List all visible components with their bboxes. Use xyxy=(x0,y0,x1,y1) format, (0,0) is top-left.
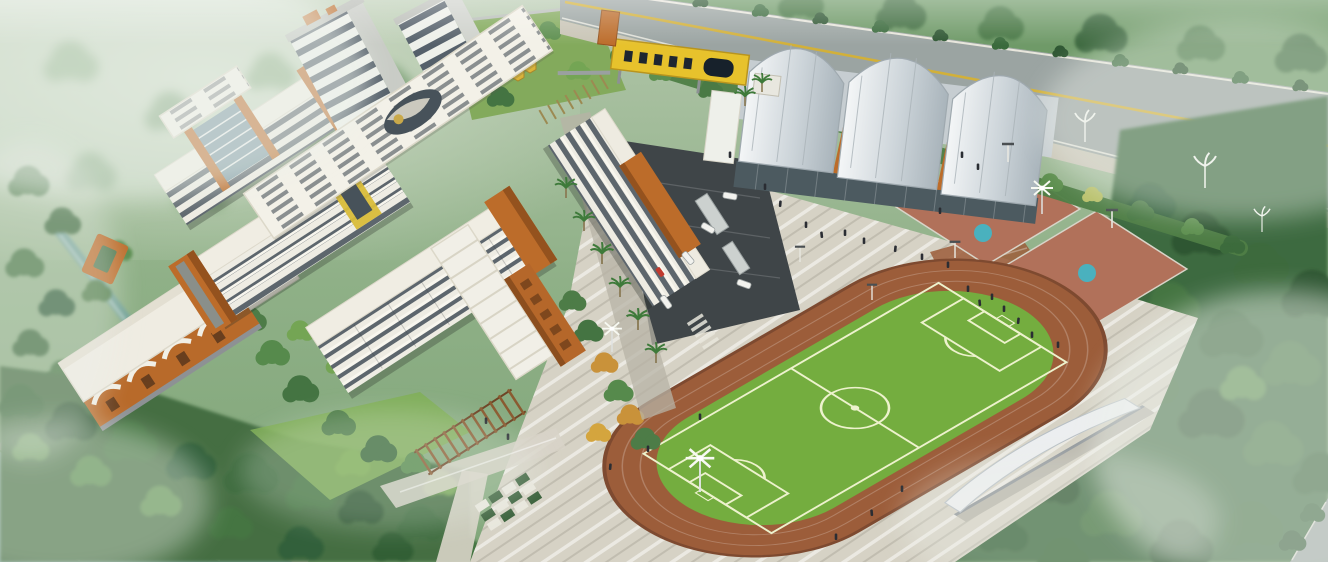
court-circle-1 xyxy=(974,224,992,242)
court-circle-2 xyxy=(1078,264,1096,282)
campus-rendering xyxy=(0,0,1328,562)
top-fog-band xyxy=(0,0,1328,46)
